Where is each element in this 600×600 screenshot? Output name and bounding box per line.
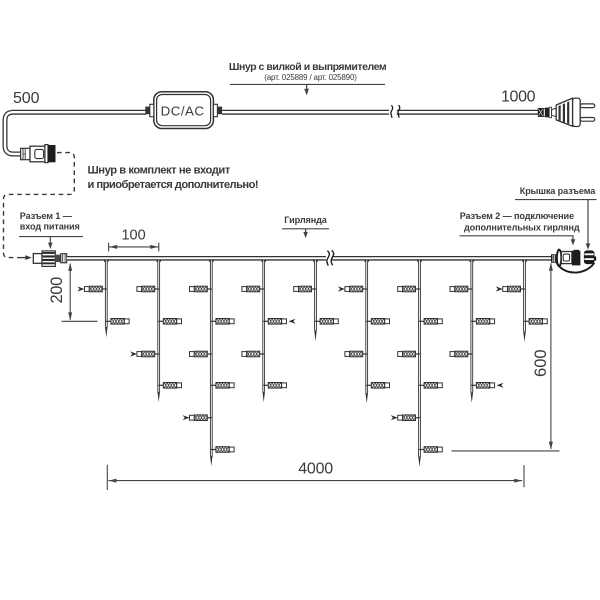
svg-text:200: 200 <box>48 277 66 304</box>
svg-text:DC/AC: DC/AC <box>161 103 205 118</box>
svg-text:1000: 1000 <box>501 89 536 106</box>
svg-text:Шнур в комплект не входит: Шнур в комплект не входит <box>88 165 231 177</box>
svg-text:100: 100 <box>121 227 145 243</box>
svg-text:4000: 4000 <box>298 460 333 477</box>
svg-text:вход питания: вход питания <box>20 221 80 231</box>
svg-text:дополнительных гирлянд: дополнительных гирлянд <box>464 223 580 233</box>
svg-text:(арт. 025889 / арт. 025890): (арт. 025889 / арт. 025890) <box>264 73 357 82</box>
svg-text:Разъем 2 — подключение: Разъем 2 — подключение <box>460 211 574 221</box>
svg-text:Гирлянда: Гирлянда <box>284 215 327 225</box>
svg-text:Шнур с вилкой и выпрямителем: Шнур с вилкой и выпрямителем <box>229 61 387 73</box>
svg-text:Разъем 1 —: Разъем 1 — <box>20 211 73 221</box>
svg-text:и приобретается дополнительно!: и приобретается дополнительно! <box>88 179 259 191</box>
svg-text:600: 600 <box>532 349 550 377</box>
svg-text:Крышка разъема: Крышка разъема <box>520 186 596 196</box>
svg-text:500: 500 <box>13 90 40 107</box>
